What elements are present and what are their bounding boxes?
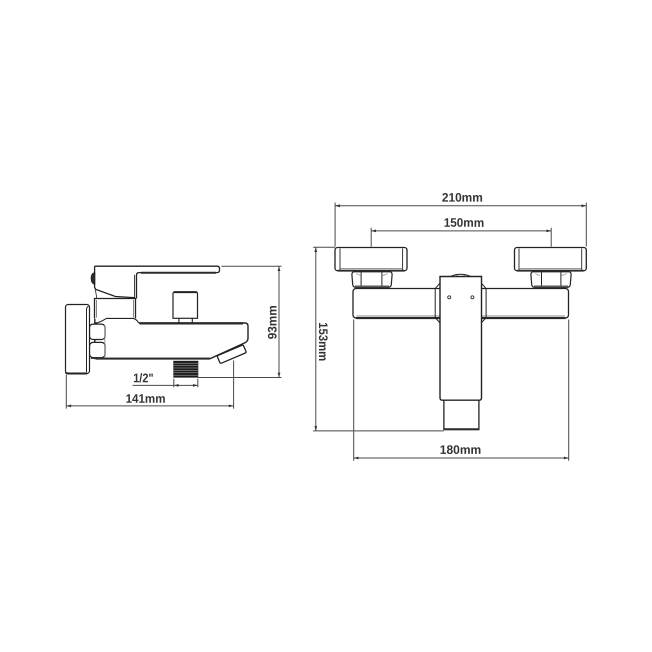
svg-text:210mm: 210mm [442, 191, 483, 205]
svg-text:150mm: 150mm [444, 216, 485, 230]
svg-text:153mm: 153mm [316, 322, 330, 361]
svg-text:141mm: 141mm [126, 392, 166, 406]
svg-text:1/2": 1/2" [133, 371, 153, 385]
svg-text:180mm: 180mm [440, 443, 481, 457]
svg-text:93mm: 93mm [265, 305, 279, 339]
